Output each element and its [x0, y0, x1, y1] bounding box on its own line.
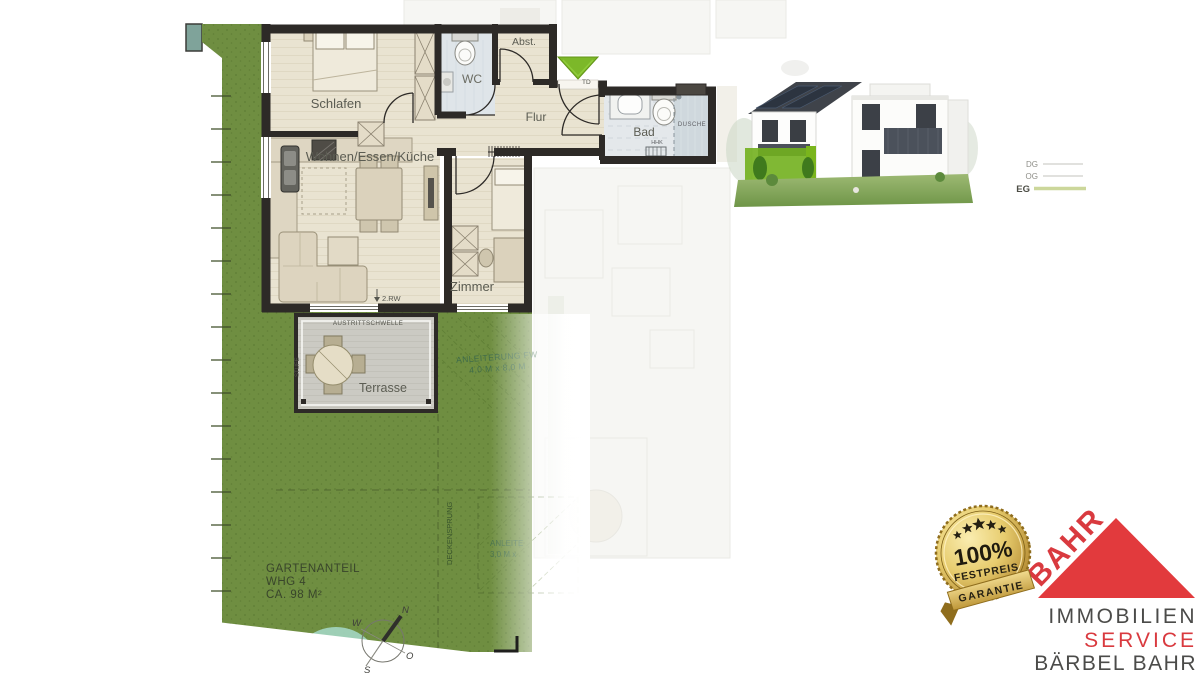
- austrittschwelle-label: AUSTRITTSCHWELLE: [333, 320, 403, 327]
- gartenanteil-line2: WHG 4: [266, 576, 306, 588]
- hhk-label: HHK: [651, 140, 663, 146]
- room-label-bad: Bad: [633, 125, 654, 139]
- compass-n-label: N: [402, 605, 409, 616]
- room-label-wohnen: Wohnen/Essen/Küche: [306, 149, 434, 164]
- floorplan-page: ANLEITERUNG FW 4,0 M x 8,0 M ANLEITE 3,0…: [0, 0, 1200, 675]
- building-rendering: [726, 60, 978, 207]
- compass-s-label: S: [364, 665, 371, 675]
- room-label-zimmer: Zimmer: [450, 279, 495, 294]
- room-label-abst: Abst.: [512, 36, 536, 48]
- hedge-element: [186, 24, 202, 51]
- room-label-schlafen: Schlafen: [311, 96, 362, 111]
- stufe-label: STUFE: [295, 357, 301, 377]
- td-label: TD: [582, 79, 591, 86]
- rw-label: 2.RW: [382, 294, 402, 303]
- logo-line3: BÄRBEL BAHR: [1034, 652, 1197, 675]
- room-label-dusche: DUSCHE: [678, 122, 706, 128]
- legend-item-og[interactable]: OG: [1026, 172, 1038, 181]
- logo-line1: IMMOBILIEN: [1048, 605, 1197, 628]
- compass-w-label: W: [352, 618, 362, 629]
- company-logo: BAHR IMMOBILIEN SERVICE BÄRBEL BAHR 100%…: [924, 499, 1197, 675]
- legend-item-eg[interactable]: EG: [1016, 184, 1030, 195]
- compass-o-label: O: [406, 651, 414, 662]
- gartenanteil-line3: CA. 98 M²: [266, 589, 322, 601]
- entrance-threshold: [558, 80, 598, 89]
- floorplan-scene: ANLEITERUNG FW 4,0 M x 8,0 M ANLEITE 3,0…: [0, 0, 1200, 675]
- room-label-terrasse: Terrasse: [359, 381, 407, 395]
- gartenanteil-line1: GARTENANTEIL: [266, 563, 360, 575]
- garden-fade: [490, 314, 590, 660]
- room-label-wc: WC: [462, 72, 482, 86]
- festpreis-badge: 100% FESTPREIS GARANTIE: [924, 499, 1041, 627]
- room-label-flur: Flur: [526, 110, 547, 124]
- terrace: AUSTRITTSCHWELLE STUFE Terrasse: [295, 315, 436, 411]
- logo-line2: SERVICE: [1084, 629, 1197, 652]
- legend-item-dg[interactable]: DG: [1026, 160, 1038, 169]
- deckensprung-label: DECKENSPRUNG: [445, 501, 454, 565]
- shaft-element: [676, 84, 706, 95]
- floor-legend: DG OG EG: [1016, 160, 1086, 195]
